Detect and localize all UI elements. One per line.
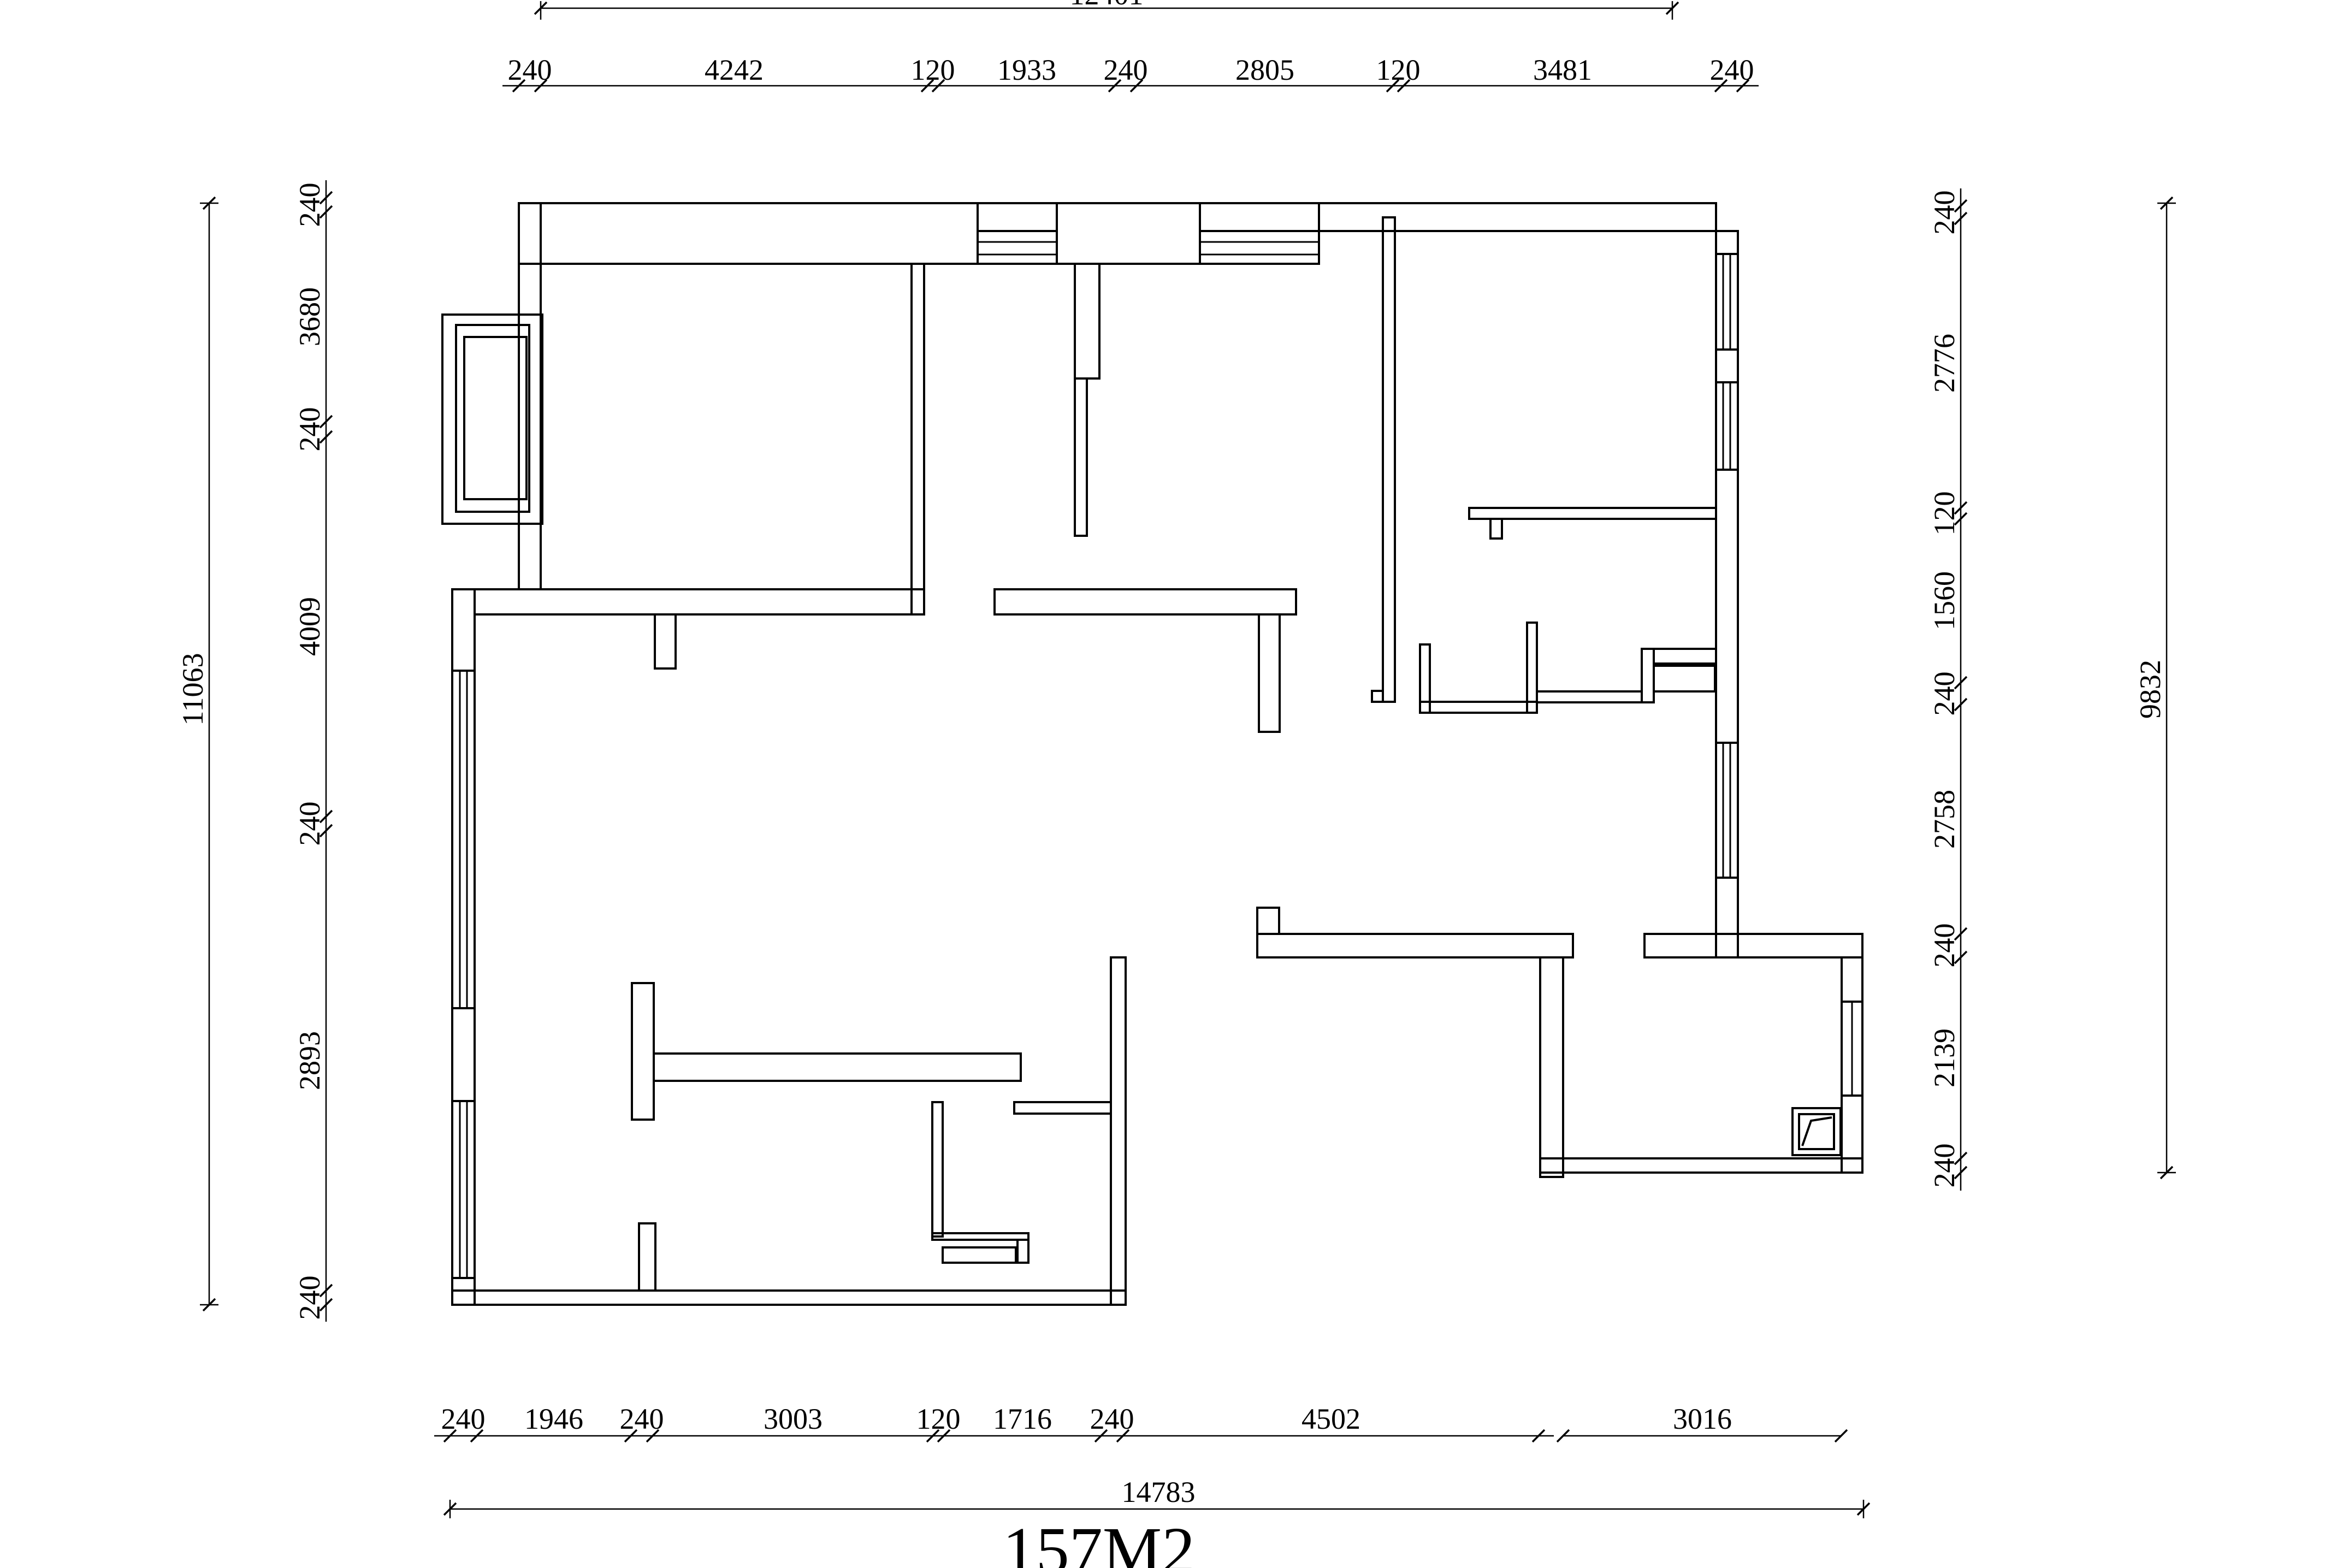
dim-right-segment-0-label: 240 (1928, 191, 1961, 235)
dim-left-segment-3-label: 4009 (293, 597, 326, 656)
dim-bottom-labels: 240 1946 240 3003 120 1716 240 4502 3016… (441, 1403, 1732, 1508)
dim-left-segment-5-label: 2893 (293, 1031, 326, 1090)
dim-top-segment-7-label: 3481 (1533, 54, 1592, 86)
dim-bottom-segment-8-label: 3016 (1673, 1403, 1732, 1435)
shower-tray (1792, 1108, 1841, 1155)
walls (442, 203, 1862, 1305)
dimension-ticks (203, 2, 2173, 1515)
dim-right-total-label: 9832 (2134, 660, 2167, 719)
dim-right-segment-3-label: 1560 (1928, 571, 1961, 630)
dim-right-segment-8-label: 240 (1928, 1144, 1961, 1188)
dim-bottom-segment-2-label: 240 (620, 1403, 664, 1435)
dim-top-total-label: 12401 (1070, 0, 1144, 11)
dim-right-segment-7-label: 2139 (1928, 1028, 1961, 1087)
dim-right-segment-2-label: 120 (1928, 492, 1961, 536)
dim-top-segment-4-label: 240 (1104, 54, 1148, 86)
exterior-and-interior-walls (442, 203, 1862, 1305)
dim-top-labels: 12401 240 4242 120 1933 240 2805 120 348… (508, 0, 1754, 86)
dim-bottom-segment-1-label: 1946 (524, 1403, 583, 1435)
dim-top-segment-3-label: 1933 (997, 54, 1056, 86)
dim-right-segment-5-label: 2758 (1928, 790, 1961, 849)
dim-top-segment-6-label: 120 (1376, 54, 1421, 86)
dim-left-total-line (200, 203, 218, 1305)
dim-top-segment-0-label: 240 (508, 54, 552, 86)
floor-plan-svg: 12401 240 4242 120 1933 240 2805 120 348… (0, 0, 2325, 1568)
dim-right-labels: 240 2776 120 1560 240 2758 240 2139 240 … (1928, 191, 2167, 1188)
shower-tray-drain-line (1802, 1117, 1832, 1146)
dim-top-segment-1-label: 4242 (705, 54, 764, 86)
dim-left-segment-4-label: 240 (293, 802, 326, 846)
dim-left-segment-0-label: 240 (293, 183, 326, 227)
dim-left-segment-1-label: 3680 (293, 287, 326, 346)
dim-left-segment-2-label: 240 (293, 407, 326, 452)
dim-right-segment-4-label: 240 (1928, 672, 1961, 716)
plan-title: 157M2 (1003, 1514, 1195, 1568)
window-glazing-lines (460, 242, 1852, 1278)
dim-bottom-segment-5-label: 1716 (993, 1403, 1052, 1435)
dim-bottom-total-label: 14783 (1122, 1476, 1196, 1508)
floor-plan-page: 12401 240 4242 120 1933 240 2805 120 348… (0, 0, 2325, 1568)
dim-top-segment-8-label: 240 (1710, 54, 1754, 86)
dim-left-segment-6-label: 240 (293, 1276, 326, 1320)
dim-left-labels: 11063 240 3680 240 4009 240 2893 240 (176, 183, 326, 1320)
dim-top-segment-5-label: 2805 (1235, 54, 1294, 86)
dim-bottom-segment-3-label: 3003 (764, 1403, 823, 1435)
dim-bottom-segment-6-label: 240 (1090, 1403, 1134, 1435)
dim-left-ticks (203, 192, 332, 1311)
glazing-lines-path (460, 242, 1852, 1278)
dim-right-segment-1-label: 2776 (1928, 334, 1961, 393)
dim-bottom-segment-7-label: 4502 (1301, 1403, 1360, 1435)
dim-top-segment-2-label: 120 (911, 54, 955, 86)
dim-bottom-segment-0-label: 240 (441, 1403, 486, 1435)
dim-right-segment-6-label: 240 (1928, 924, 1961, 968)
dim-bottom-segment-4-label: 120 (916, 1403, 961, 1435)
dim-left-total-label: 11063 (176, 653, 209, 726)
